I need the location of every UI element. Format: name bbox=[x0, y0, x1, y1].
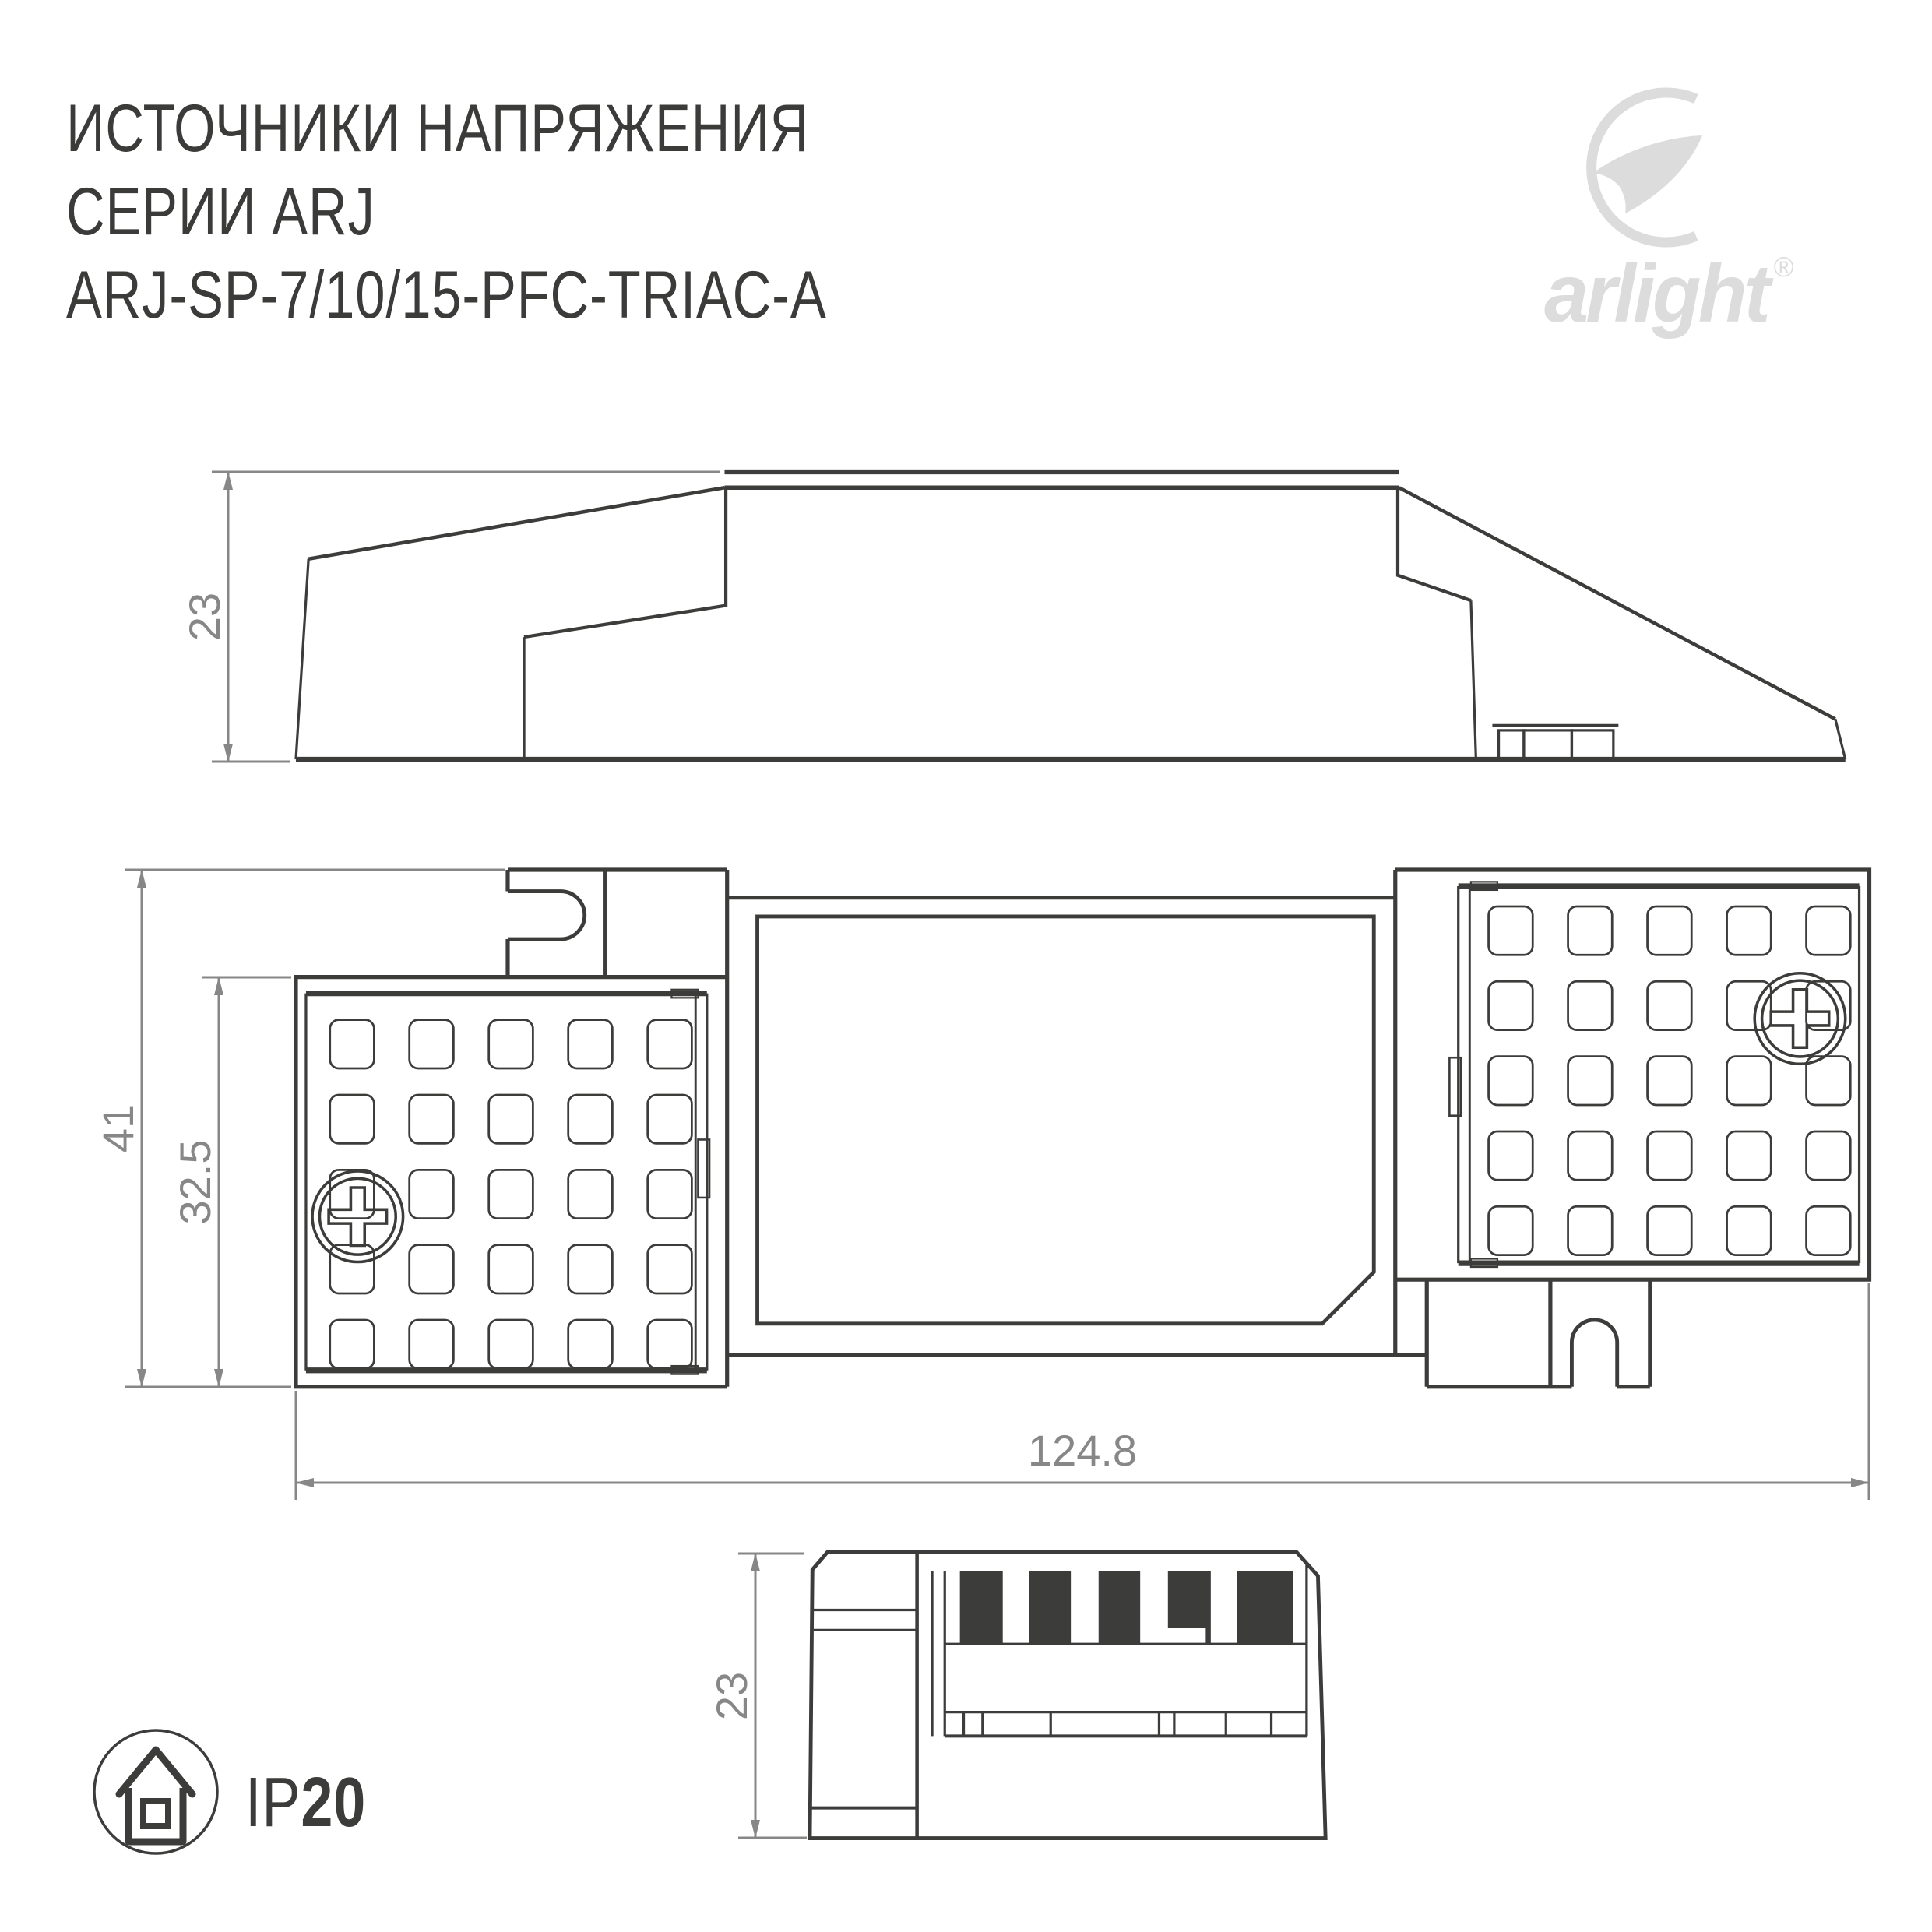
datasheet-page: ИСТОЧНИКИ НАПРЯЖЕНИЯ СЕРИИ ARJ ARJ-SP-7/… bbox=[0, 0, 1932, 1932]
side-view-drawing bbox=[296, 472, 1846, 759]
side-terminal-blocks bbox=[1499, 730, 1614, 759]
ip-prefix: IP bbox=[245, 1764, 301, 1842]
dim-top-body-height: 32.5 bbox=[171, 1140, 220, 1225]
side-left-slope bbox=[308, 487, 724, 558]
mounting-ear-bottom-right bbox=[1427, 1279, 1650, 1387]
screw-right bbox=[1754, 973, 1846, 1065]
side-right-slope bbox=[1399, 487, 1835, 719]
dim-side-height: 23 bbox=[180, 593, 229, 641]
end-view-drawing bbox=[810, 1552, 1325, 1839]
protection-rating-text: IP20 bbox=[245, 1763, 366, 1843]
protection-rating-badge: IP20 bbox=[90, 1726, 557, 1862]
ip-value: 20 bbox=[301, 1764, 366, 1842]
technical-drawing: 23 41 32.5 124.8 23 bbox=[0, 0, 1932, 1932]
top-left-section-outline bbox=[296, 977, 727, 1387]
top-view-drawing bbox=[296, 870, 1870, 1387]
house-in-circle-icon bbox=[90, 1726, 222, 1858]
dim-length: 124.8 bbox=[1028, 1426, 1137, 1475]
label-area bbox=[758, 917, 1374, 1324]
dim-top-overall-height: 41 bbox=[93, 1104, 143, 1153]
screw-left bbox=[312, 1171, 403, 1262]
mounting-slot-right bbox=[1571, 1320, 1617, 1387]
top-right-section-outline bbox=[1395, 870, 1870, 1279]
vent-panel-left bbox=[306, 990, 709, 1374]
vent-panel-right bbox=[1449, 882, 1859, 1267]
dim-end-height: 23 bbox=[707, 1672, 756, 1720]
mounting-slot-left bbox=[508, 892, 585, 940]
end-terminal-block bbox=[932, 1564, 1307, 1737]
mounting-ear-top-left bbox=[508, 870, 727, 977]
